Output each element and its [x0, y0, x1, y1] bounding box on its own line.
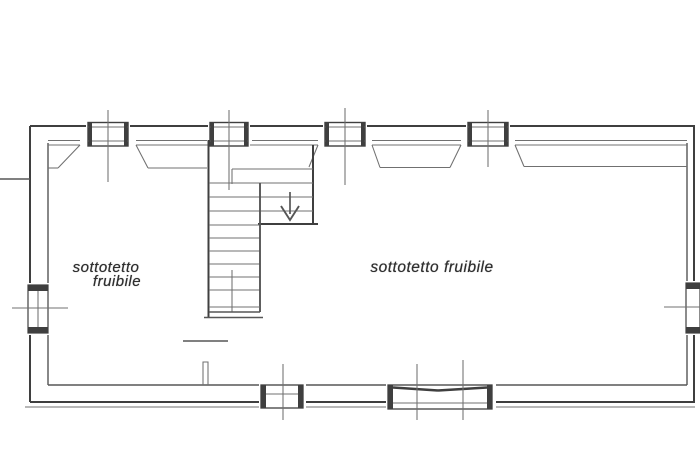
stair-down-arrow-icon [281, 192, 299, 220]
window-splay-reveals [58, 145, 524, 168]
left-room-label: sottotetto fruibile [56, 261, 156, 289]
window-top-3 [323, 108, 367, 185]
window-top-1 [86, 110, 130, 182]
window-left-wall [12, 283, 68, 335]
staircase [204, 140, 318, 318]
left-room-label-line2: fruibile [78, 275, 156, 289]
window-top-4 [466, 110, 510, 167]
wall-stub [203, 362, 208, 385]
right-room-label: sottotetto fruibile [352, 261, 512, 275]
window-right-wall [664, 281, 700, 335]
window-bottom-2 [386, 360, 496, 420]
right-room-label-text: sottotetto fruibile [370, 259, 493, 276]
floor-plan-canvas: sottotetto fruibile sottotetto fruibile [0, 0, 700, 467]
window-top-2 [208, 110, 250, 190]
window-bottom-1 [259, 364, 306, 420]
floor-plan-drawing [0, 0, 700, 467]
